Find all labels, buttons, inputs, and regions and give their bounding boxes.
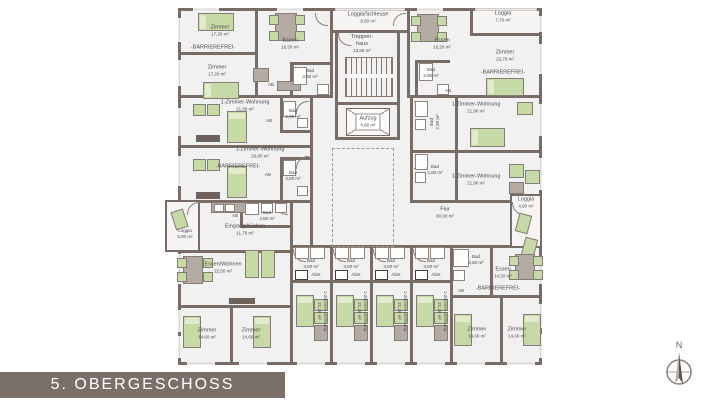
wall (178, 52, 258, 55)
wall (410, 150, 542, 153)
room-area: 17,20 m² (208, 72, 227, 78)
window (297, 362, 325, 365)
room-label-wohnung-l1: 1-Zimmer-Wohnung21,90 m² (221, 100, 270, 113)
label-text: AB (445, 88, 451, 94)
bed (376, 295, 394, 327)
room-label-bad-l1: Bad2,90 m² (285, 108, 300, 120)
room-area: 3,90 m² (343, 264, 358, 270)
chair (533, 270, 543, 280)
wall (470, 33, 542, 36)
stair-landing (345, 74, 393, 78)
barrierefrei-label: -BARRIEREFREI- (476, 285, 520, 292)
chair (517, 102, 533, 115)
floor-title: 5. OBERGESCHOSS (51, 376, 235, 394)
wall (413, 280, 450, 283)
room-area: 21,90 m² (452, 109, 501, 115)
room-label-essen-tr: Essen16,20 m² (433, 38, 451, 51)
staircase (345, 57, 393, 97)
room-label-bad-l2: Bad3,80 m² (285, 170, 300, 182)
window (457, 362, 485, 365)
window (539, 104, 542, 136)
shower (415, 154, 428, 170)
window (239, 362, 267, 365)
room-label-treppenhaus: Treppen-haus13,80 m² (347, 34, 377, 54)
room-area: 2,80 m² (427, 170, 442, 176)
chair (193, 104, 206, 116)
room-area: 4,90 m² (518, 204, 535, 210)
wall (450, 295, 542, 298)
toilet (415, 119, 426, 130)
wall (178, 305, 293, 308)
window (507, 362, 535, 365)
window (417, 8, 443, 11)
bathtub (453, 249, 469, 267)
ab-label: AB (266, 118, 272, 124)
room-label-wohnung-l2: 1-Zimmer-Wohnung26,80 m² (236, 147, 285, 160)
window (539, 16, 542, 32)
storage-box (375, 270, 388, 280)
window (337, 362, 365, 365)
label-text: Abst (431, 272, 440, 278)
room-area: 11,70 m² (225, 231, 265, 237)
chair (411, 16, 421, 26)
shower (415, 101, 428, 117)
room-area: 26,80 m² (236, 154, 285, 160)
room-area: 3,80 m² (468, 260, 483, 266)
room-area: 16,20 m² (433, 45, 451, 51)
label-text: AB (268, 82, 274, 88)
room-label-bad-v4: Bad3,90 m² (423, 258, 438, 270)
wall (335, 102, 400, 105)
wall (397, 30, 400, 140)
room-area: 5,80 m² (177, 234, 192, 240)
window (539, 44, 542, 74)
room-name: Essen (494, 267, 512, 274)
sideboard (229, 298, 255, 304)
sideboard (196, 135, 220, 142)
room-area: 3,90 m² (383, 264, 398, 270)
ab-label: AB (265, 172, 271, 178)
room-name: Zimmer (508, 327, 527, 334)
room-name: 1-Zimmer-Wohnung (322, 291, 328, 331)
sink (214, 204, 224, 212)
bed (336, 295, 354, 327)
room-area: 2,90 m² (435, 114, 441, 129)
window (178, 156, 181, 186)
room-label-bad-v3: Bad3,90 m² (383, 258, 398, 270)
room-name: 1-Zimmer-Wohnung (236, 147, 285, 154)
room-name: 1-Zimmer-Wohnung (452, 102, 501, 109)
room-label-bad-tl: Bad3,80 m² (302, 68, 317, 80)
window (178, 310, 181, 332)
room-label-bad-eingang: Bad4,80 m² (259, 210, 274, 222)
window (178, 60, 181, 86)
room-area: 4,80 m² (259, 216, 274, 222)
room-name: Loggia (177, 228, 192, 234)
ab-label: AB (268, 82, 274, 88)
room-name: Loggia/Schleuse (348, 12, 389, 19)
bed (227, 111, 247, 143)
bed (227, 166, 247, 198)
room-name: 1-Zimmer-Wohnung (221, 100, 270, 107)
label-text: -BARRIEREFREI- (216, 163, 260, 170)
room-label-wohnung-v1: 1-Zimmer-Wohnung21,30 m² (316, 291, 328, 331)
wall (373, 280, 410, 283)
room-area: 3,90 m² (303, 264, 318, 270)
sideboard (196, 192, 220, 199)
room-label-aufzug: Aufzug4,80 m² (355, 114, 380, 131)
room-name: Essen (281, 38, 299, 45)
wall (407, 8, 410, 98)
toilet (317, 84, 329, 95)
room-name: Essen/Wohnen (204, 262, 241, 269)
barrierefrei-label: -BARRIEREFREI- (481, 69, 525, 76)
window (187, 362, 215, 365)
barrierefrei-label: -BARRIEREFREI- (191, 44, 235, 51)
room-name: 1-Zimmer-Wohnung (402, 291, 408, 331)
room-name: Eingang/Küchen (225, 224, 265, 231)
room-area: 3,80 m² (285, 176, 300, 182)
room-label-loggia-l: Loggia5,80 m² (177, 228, 192, 240)
room-name: Zimmer (496, 50, 515, 57)
room-area: 8,80 m² (348, 19, 389, 25)
window (193, 8, 219, 11)
toilet (453, 270, 465, 281)
room-name: 1-Zimmer-Wohnung (452, 174, 501, 181)
room-label-wohnung-r1: 1-Zimmer-Wohnung21,90 m² (452, 102, 501, 115)
room-label-bad-v2: Bad3,90 m² (343, 258, 358, 270)
chair (177, 272, 187, 282)
room-label-zimmer-bl2: Zimmer14,60 m² (242, 328, 261, 341)
room-area: 3,80 m² (302, 74, 317, 80)
window (178, 18, 181, 42)
abst-label: Abst (351, 272, 360, 278)
room-label-essen-br: Essen14,50 m² (494, 267, 512, 280)
storage-box (335, 270, 348, 280)
room-name: Aufzug (359, 116, 376, 123)
room-label-wohnung-v2: 1-Zimmer-Wohnung21,30 m² (356, 291, 368, 331)
chair (525, 170, 540, 184)
room-area: 2,90 m² (285, 114, 300, 120)
compass-needle-light (675, 352, 679, 384)
room-label-bad-tr: Bad3,90 m² (423, 67, 438, 79)
label-text: Abst (391, 272, 400, 278)
abst-label: Abst (311, 272, 320, 278)
room-area: 16,50 m² (281, 45, 299, 51)
wall (335, 30, 338, 140)
room-area: 21,90 m² (452, 181, 501, 187)
room-label-zimmer-tr: Zimmer22,70 m² (496, 50, 515, 63)
chair (269, 31, 279, 41)
room-area: 14,60 m² (508, 334, 527, 340)
room-label-zimmer-bl1: Zimmer14,60 m² (198, 328, 217, 341)
window (417, 362, 445, 365)
abst-label: Abst (391, 272, 400, 278)
wall (415, 60, 418, 98)
compass: N (662, 334, 696, 396)
wall (333, 280, 370, 283)
room-area: 3,90 m² (423, 264, 438, 270)
wall (280, 130, 310, 133)
chair (411, 32, 421, 42)
chair (533, 256, 543, 266)
room-label-wohnung-v3: 1-Zimmer-Wohnung21,30 m² (396, 291, 408, 331)
room-name: Zimmer (211, 25, 230, 32)
bed (416, 295, 434, 327)
room-label-eingang: Eingang/Küchen11,70 m² (225, 224, 265, 237)
room-area: 22,70 m² (496, 57, 515, 63)
window (277, 8, 303, 11)
room-area: 7,70 m² (495, 18, 512, 24)
label-text: AB (265, 172, 271, 178)
window (178, 108, 181, 136)
room-area: 14,60 m² (468, 334, 487, 340)
wall (470, 8, 473, 36)
wall (230, 305, 233, 365)
ab-label: AB (445, 88, 451, 94)
room-label-flur: Flur80,90 m² (436, 207, 454, 220)
sofa (261, 250, 275, 278)
wall (500, 295, 503, 365)
room-area: 22,50 m² (204, 269, 241, 275)
chair (193, 159, 206, 171)
toilet (297, 186, 308, 196)
floor-title-bar: 5. OBERGESCHOSS (0, 372, 285, 398)
sofa (245, 250, 259, 278)
compass-needle-dark (679, 352, 683, 384)
ab-label: AB (232, 213, 238, 219)
room-name: Treppen-haus (347, 34, 377, 48)
room-name: Essen (433, 38, 451, 45)
room-label-bad-r2: Bad2,80 m² (427, 164, 442, 176)
chair (269, 15, 279, 25)
chair (437, 16, 447, 26)
label-text: -BARRIEREFREI- (476, 285, 520, 292)
room-name: Loggia (495, 11, 512, 18)
room-label-loggia-schleuse: Loggia/Schleuse8,80 m² (348, 12, 389, 25)
room-label-loggia-tr: Loggia7,70 m² (495, 11, 512, 24)
chair (509, 164, 524, 178)
storage-box (295, 270, 308, 280)
shower (245, 203, 259, 215)
label-text: AB (232, 213, 238, 219)
chair (509, 256, 519, 266)
wall (410, 200, 513, 203)
room-area: 13,80 m² (347, 48, 377, 54)
room-area: 17,20 m² (211, 32, 230, 38)
storage-box (415, 270, 428, 280)
room-area: 3,90 m² (423, 73, 438, 79)
room-name: Zimmer (242, 328, 261, 335)
abst-label: Abst (431, 272, 440, 278)
label-text: -BARRIEREFREI- (191, 44, 235, 51)
toilet (415, 172, 426, 183)
room-name: Zimmer (208, 65, 227, 72)
room-name: Flur (436, 207, 454, 214)
room-area: 21,90 m² (221, 107, 270, 113)
label-text: Abst (311, 272, 320, 278)
label-text: AB (458, 288, 464, 294)
north-label: N (676, 340, 683, 350)
wardrobe (253, 68, 269, 82)
bed (470, 128, 505, 147)
label-text: AB (266, 118, 272, 124)
room-name: Loggia (518, 197, 535, 204)
chair (207, 104, 220, 116)
room-label-zimmer-br2: Zimmer14,60 m² (508, 327, 527, 340)
chair (177, 258, 187, 268)
room-label-bad-r1: Bad2,90 m² (429, 114, 441, 129)
room-name: 1-Zimmer-Wohnung (362, 291, 368, 331)
wall (410, 245, 413, 365)
table (509, 182, 524, 194)
room-name: 1-Zimmer-Wohnung (442, 291, 448, 331)
room-name: Zimmer (198, 328, 217, 335)
room-label-wohnung-v4: 1-Zimmer-Wohnung21,30 m² (436, 291, 448, 331)
room-label-zimmer-tl1: Zimmer17,20 m² (211, 25, 230, 38)
window (377, 362, 405, 365)
wall (370, 245, 373, 365)
ab-label: AB (458, 288, 464, 294)
wall (310, 98, 313, 245)
wall (335, 137, 400, 140)
toilet (275, 203, 287, 213)
window (178, 336, 181, 358)
room-area: 14,50 m² (494, 274, 512, 280)
room-label-wohnung-r2: 1-Zimmer-Wohnung21,90 m² (452, 174, 501, 187)
bed (203, 82, 239, 99)
room-label-zimmer-tl2: Zimmer17,20 m² (208, 65, 227, 78)
chair (295, 15, 305, 25)
room-name: Zimmer (468, 327, 487, 334)
wall (330, 8, 333, 98)
bed (296, 295, 314, 327)
room-label-bad-br: Bad3,80 m² (468, 254, 483, 266)
room-label-essen-wohnen: Essen/Wohnen22,50 m² (204, 262, 241, 275)
wall (293, 280, 330, 283)
label-text: Abst (351, 272, 360, 278)
barrierefrei-label: -BARRIEREFREI- (216, 163, 260, 170)
room-area: 4,80 m² (359, 123, 376, 129)
bed (486, 78, 524, 96)
wall (330, 245, 333, 365)
floor-plan: Zimmer17,20 m² -BARRIEREFREI- Zimmer17,2… (165, 4, 545, 370)
room-label-zimmer-br1: Zimmer14,60 m² (468, 327, 487, 340)
room-area: 14,60 m² (242, 335, 261, 341)
room-label-bad-v1: Bad3,90 m² (303, 258, 318, 270)
room-label-loggia-r: Loggia4,90 m² (518, 197, 535, 210)
room-label-essen-tl: Essen16,50 m² (281, 38, 299, 51)
room-area: 80,90 m² (436, 214, 454, 220)
label-text: -BARRIEREFREI- (481, 69, 525, 76)
room-area: 14,60 m² (198, 335, 217, 341)
atrium-dashed-outline (332, 148, 394, 247)
stove (225, 204, 235, 212)
